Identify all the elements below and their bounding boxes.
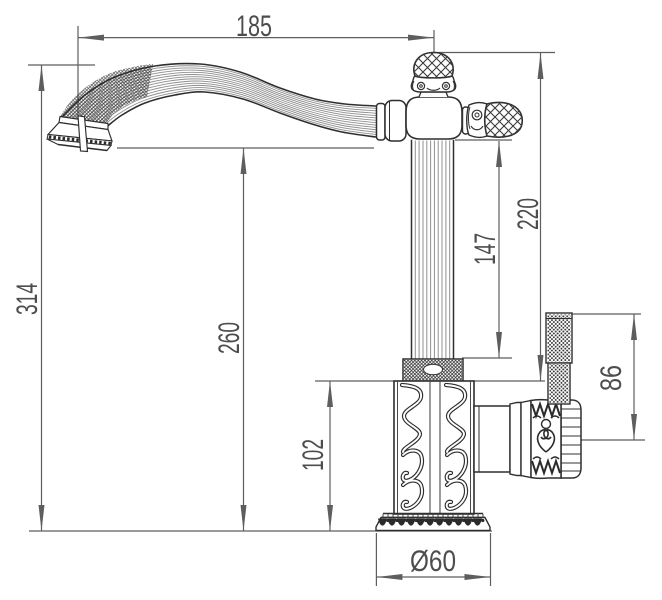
svg-text:Ø60: Ø60 [410, 545, 456, 578]
svg-text:260: 260 [213, 322, 246, 354]
svg-text:220: 220 [512, 198, 545, 230]
svg-text:102: 102 [297, 439, 330, 471]
svg-text:314: 314 [11, 283, 44, 315]
svg-text:86: 86 [595, 365, 628, 391]
svg-text:147: 147 [469, 233, 502, 265]
svg-text:185: 185 [236, 10, 272, 43]
